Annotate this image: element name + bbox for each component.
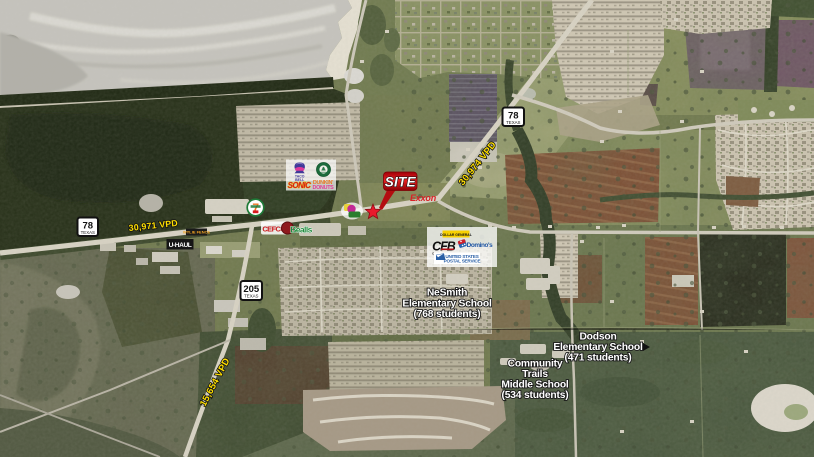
svg-text:U-HAUL: U-HAUL — [169, 242, 192, 249]
svg-text:(768 students): (768 students) — [413, 309, 480, 320]
svg-text:POSTAL SERVICE: POSTAL SERVICE — [444, 259, 481, 264]
svg-text:Elementary School: Elementary School — [402, 299, 492, 310]
svg-text:NeSmith: NeSmith — [427, 288, 467, 299]
svg-text:Elementary School: Elementary School — [553, 342, 643, 353]
svg-text:(471 students): (471 students) — [564, 353, 631, 364]
svg-text:Dodson: Dodson — [579, 332, 616, 343]
svg-text:DOLLAR GENERAL: DOLLAR GENERAL — [440, 233, 472, 237]
svg-text:SITE: SITE — [385, 175, 417, 190]
svg-text:TEXAS: TEXAS — [244, 294, 258, 299]
svg-text:DONUTS: DONUTS — [313, 185, 335, 191]
svg-text:Middle School: Middle School — [501, 380, 569, 391]
svg-text:Exxon: Exxon — [410, 193, 437, 203]
svg-text:Trails: Trails — [522, 369, 548, 380]
svg-text:Community: Community — [508, 359, 563, 370]
svg-text:TEXAS: TEXAS — [81, 230, 95, 235]
svg-text:SONIC: SONIC — [288, 181, 312, 190]
svg-text:Domino's: Domino's — [467, 242, 494, 249]
svg-text:Bealls: Bealls — [290, 225, 312, 235]
svg-text:WYLIE FENCE: WYLIE FENCE — [183, 230, 211, 235]
svg-text:(534 students): (534 students) — [501, 390, 568, 401]
svg-text:TEXAS: TEXAS — [506, 120, 520, 125]
